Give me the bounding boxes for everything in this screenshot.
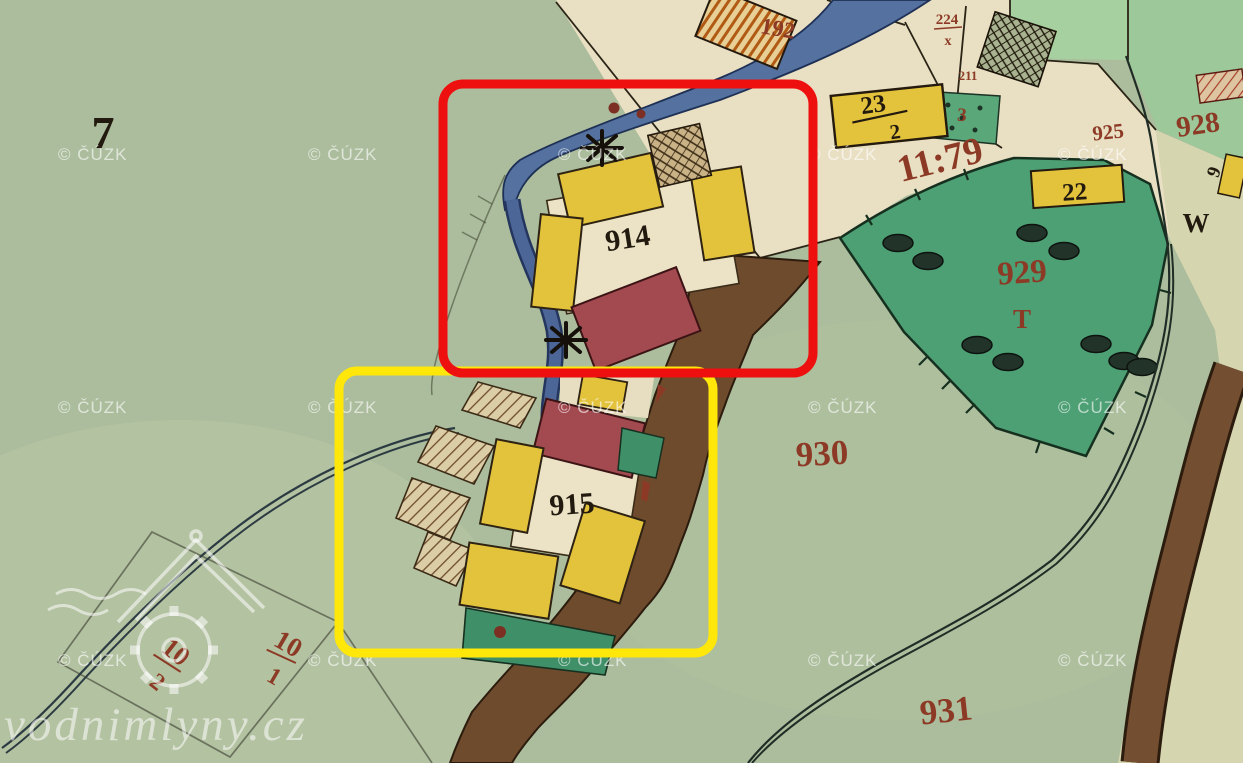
cadastral-map-view: 7 914 915 23 2 22 W 9 11:79 925 928 929 … <box>0 0 1243 763</box>
map-canvas: 7 914 915 23 2 22 W 9 11:79 925 928 929 … <box>0 0 1243 763</box>
cuzk-watermark: © ČÚZK <box>808 651 878 670</box>
parcel-label-3: 3 <box>956 105 967 127</box>
site-watermark: vodnimlyny.cz <box>4 699 308 751</box>
cuzk-watermark: © ČÚZK <box>58 145 128 164</box>
cuzk-watermark: © ČÚZK <box>308 145 378 164</box>
cuzk-watermark: © ČÚZK <box>808 145 878 164</box>
wooden-building <box>531 214 582 311</box>
parcel-label-929: 929 <box>996 253 1048 292</box>
house-label-915: 915 <box>548 486 595 522</box>
house-label-22: 22 <box>1061 178 1088 207</box>
house-23 <box>831 84 948 147</box>
mill-asterisk-icon <box>546 323 586 357</box>
parcel-label-925: 925 <box>1091 118 1125 145</box>
parcel-label-929-class: T <box>1013 304 1031 334</box>
wooden-building <box>460 542 559 618</box>
parcel-label-930: 930 <box>795 433 849 475</box>
map-letter-w: W <box>1183 208 1210 238</box>
parcel-label-931: 931 <box>918 688 974 732</box>
cuzk-watermark: © ČÚZK <box>808 398 878 417</box>
cuzk-watermark: © ČÚZK <box>1058 651 1128 670</box>
weir-mark <box>609 103 620 114</box>
cuzk-watermark: © ČÚZK <box>58 651 128 670</box>
parcel-label-211: 211 <box>959 68 978 83</box>
outbuilding-hatched <box>648 124 712 188</box>
parcel-label-928: 928 <box>1174 106 1222 144</box>
cuzk-watermark: © ČÚZK <box>58 398 128 417</box>
house-label-914: 914 <box>603 219 653 259</box>
tree-mark <box>494 626 506 638</box>
cuzk-watermark: © ČÚZK <box>1058 145 1128 164</box>
svg-text:x: x <box>945 34 952 49</box>
cuzk-watermark: © ČÚZK <box>558 145 628 164</box>
cuzk-watermark: © ČÚZK <box>558 398 628 417</box>
weir-mark-2 <box>637 110 646 119</box>
cuzk-watermark: © ČÚZK <box>1058 398 1128 417</box>
ruin-hatched <box>1196 69 1243 103</box>
svg-text:224: 224 <box>936 12 959 28</box>
